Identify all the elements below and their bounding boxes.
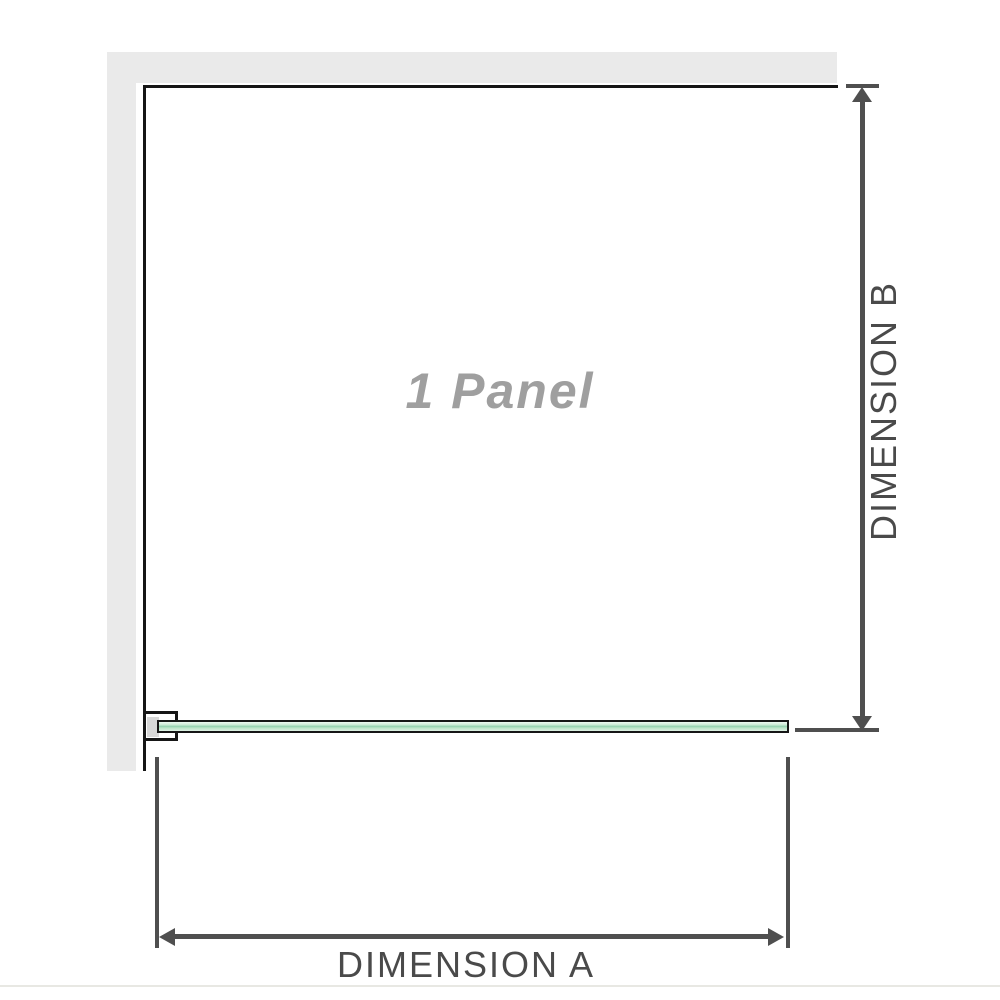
panel-count-label: 1 Panel [300,362,700,420]
dimension-a-line [171,934,772,939]
wall-left-strip [107,52,136,771]
dimension-a-label: DIMENSION A [266,944,666,986]
arrow-left-icon [159,928,175,946]
panel-outline-left [143,85,146,771]
diagram-canvas: 1 Panel DIMENSION B DIMENSION A [0,0,1000,1000]
dimension-a-extension-right [786,757,790,948]
arrow-right-icon [768,928,784,946]
arrow-up-icon [852,87,872,102]
dimension-b-label: DIMENSION B [863,241,905,581]
panel-outline-top [143,85,838,88]
dimension-a-extension-left [155,757,159,948]
wall-top-strip [107,52,837,83]
arrow-down-icon [852,716,872,731]
glass-panel [157,720,789,733]
page-baseline-divider [0,985,1000,987]
